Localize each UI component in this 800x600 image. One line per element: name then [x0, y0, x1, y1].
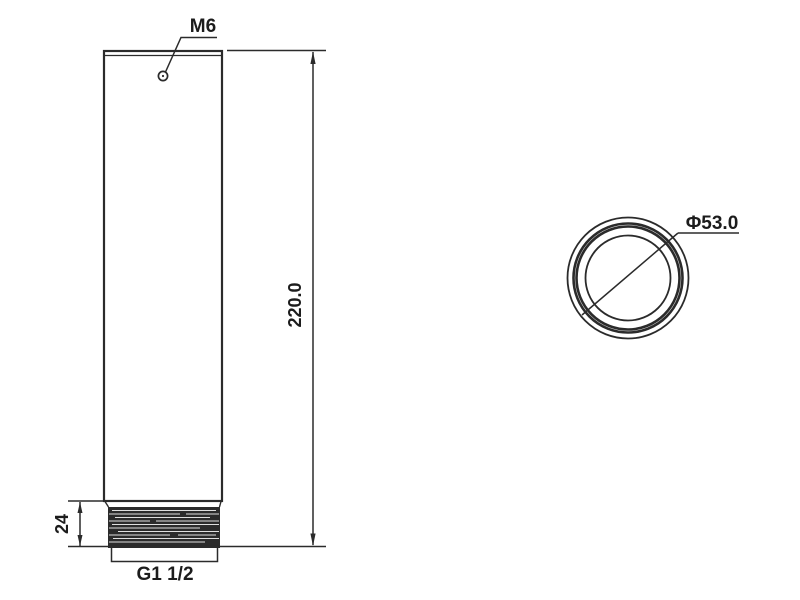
thread-relief-left — [105, 502, 109, 508]
end-view: Φ53.0 — [568, 213, 740, 339]
m6-label: M6 — [190, 16, 216, 37]
technical-drawing-canvas: M6 G1 1/2 24 — [0, 0, 800, 600]
drawing-svg: M6 G1 1/2 24 — [0, 0, 800, 600]
thread-relief-right — [220, 502, 222, 508]
front-view: M6 G1 1/2 — [104, 16, 222, 585]
thread-spec-label: G1 1/2 — [136, 564, 193, 585]
dim24-value: 24 — [52, 514, 72, 534]
m6-leader-line — [166, 38, 218, 73]
dim220-arrow-down-icon — [310, 534, 315, 547]
thread-root-circle — [577, 227, 680, 330]
m6-hole-center-dot — [162, 75, 164, 77]
diameter-value: Φ53.0 — [686, 213, 739, 234]
thread-spec-bracket — [112, 548, 218, 562]
dim24-arrow-down-icon — [78, 535, 83, 546]
dim-thread-length: 24 — [52, 501, 104, 546]
inner-bore-circle — [586, 236, 671, 321]
dim220-arrow-up-icon — [310, 52, 315, 65]
thread-crest-circle — [574, 224, 683, 333]
cylinder-body-outline — [104, 51, 222, 501]
dim24-arrow-up-icon — [78, 502, 83, 513]
dim220-value: 220.0 — [285, 282, 305, 327]
dim-overall-height: 220.0 — [68, 51, 326, 547]
